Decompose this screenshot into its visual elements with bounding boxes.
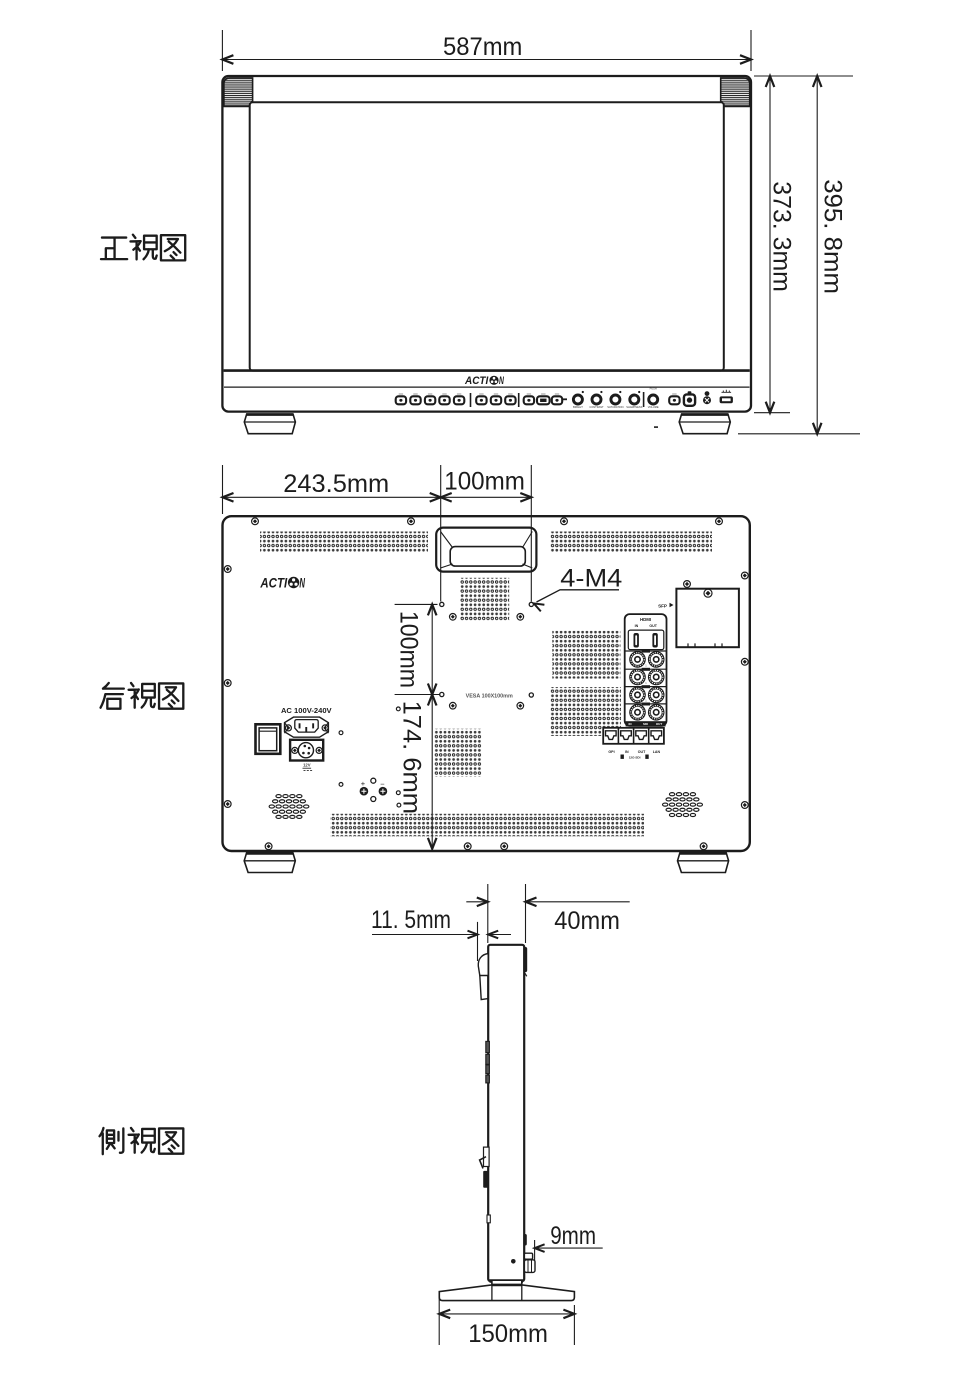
svg-text:12G-SDI: 12G-SDI: [629, 755, 641, 759]
svg-text:SFP: SFP: [658, 603, 667, 608]
svg-text:VOLUME: VOLUME: [648, 405, 659, 409]
svg-text:40mm: 40mm: [554, 907, 620, 935]
svg-text:ACTI: ACTI: [260, 575, 289, 590]
svg-text:9mm: 9mm: [550, 1222, 596, 1250]
svg-text:BRIGHT: BRIGHT: [573, 405, 583, 409]
svg-text:HDMI: HDMI: [640, 617, 651, 622]
svg-text:243.5mm: 243.5mm: [283, 470, 389, 498]
svg-text:AC 100V-240V: AC 100V-240V: [281, 706, 333, 715]
svg-text:N: N: [499, 375, 505, 387]
svg-text:11. 5mm: 11. 5mm: [371, 906, 451, 934]
svg-text:VESA 100X100mm: VESA 100X100mm: [466, 694, 513, 700]
svg-text:GPI: GPI: [608, 750, 614, 754]
svg-text:PUSH: PUSH: [650, 386, 657, 390]
svg-text:ACTI: ACTI: [464, 375, 489, 387]
svg-text:4-M4: 4-M4: [560, 565, 622, 593]
svg-text:373. 3mm: 373. 3mm: [767, 181, 795, 292]
svg-text:OUT: OUT: [649, 624, 657, 628]
svg-text:150mm: 150mm: [468, 1320, 548, 1348]
svg-text:SDI: SDI: [643, 722, 648, 726]
svg-text:OUT: OUT: [638, 750, 646, 754]
svg-text:+: +: [361, 779, 366, 788]
svg-text:IN: IN: [625, 750, 629, 754]
svg-text:12V: 12V: [303, 763, 311, 768]
svg-text:100mm: 100mm: [394, 611, 422, 688]
svg-text:CONTRAST: CONTRAST: [589, 405, 604, 409]
svg-text:OUT: OUT: [656, 722, 663, 726]
svg-text:LAN: LAN: [653, 750, 661, 754]
svg-text:IN: IN: [635, 624, 639, 628]
svg-text:587mm: 587mm: [443, 33, 522, 61]
svg-text:SHARPNESS: SHARPNESS: [626, 405, 642, 409]
svg-text:IN: IN: [629, 722, 632, 726]
svg-text:N: N: [299, 575, 305, 590]
svg-text:SATURATION: SATURATION: [607, 405, 623, 409]
svg-text:395. 8mm: 395. 8mm: [818, 179, 846, 294]
svg-text:174. 6mm: 174. 6mm: [398, 701, 426, 814]
svg-text:100mm: 100mm: [444, 468, 525, 496]
